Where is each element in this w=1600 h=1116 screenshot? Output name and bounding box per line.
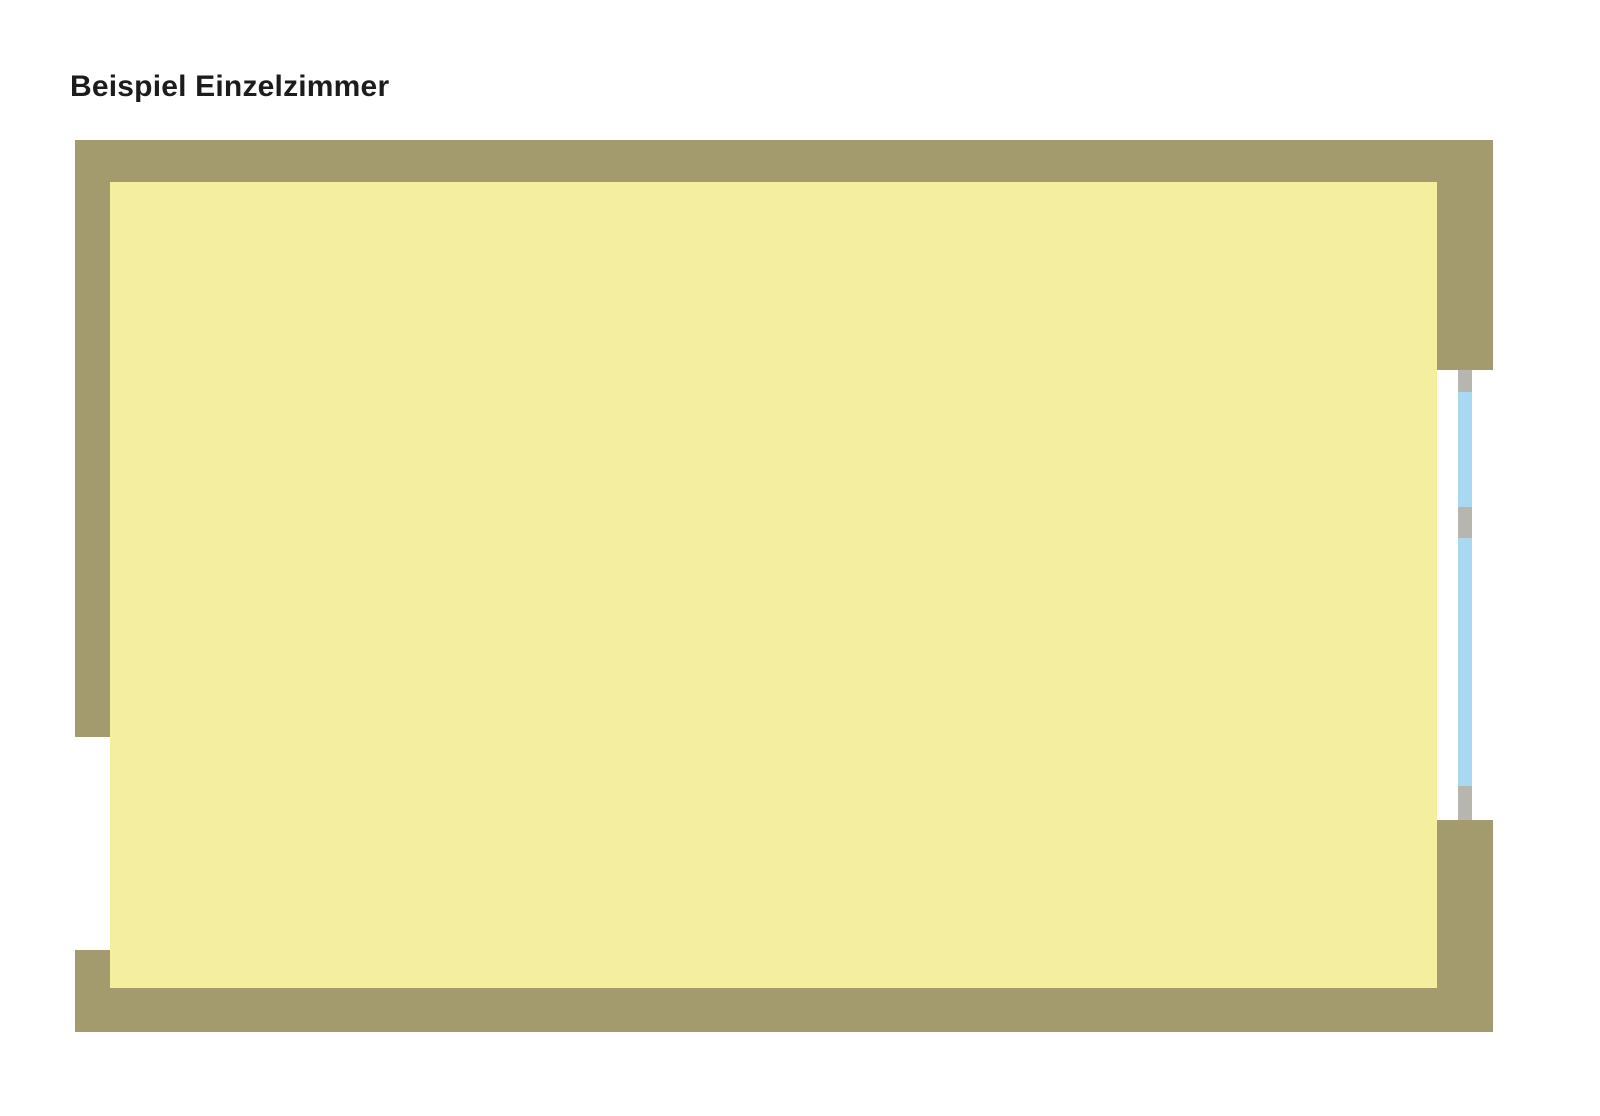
outer-wall-right-upper — [1437, 140, 1493, 370]
outer-wall-top — [75, 140, 1493, 182]
window-glass — [1458, 538, 1472, 786]
window-glass — [1458, 392, 1472, 507]
outer-wall-right-lower — [1437, 820, 1493, 1032]
window — [1437, 368, 1493, 822]
floor-plan — [75, 140, 1493, 1032]
page-title: Beispiel Einzelzimmer — [70, 70, 389, 104]
window-frame-segment — [1458, 370, 1472, 392]
outer-wall-left-upper — [75, 140, 110, 737]
window-frame-segment — [1458, 786, 1472, 820]
window-frame-segment — [1458, 507, 1472, 538]
room-floor — [110, 182, 1437, 988]
outer-wall-bottom — [75, 988, 1493, 1032]
